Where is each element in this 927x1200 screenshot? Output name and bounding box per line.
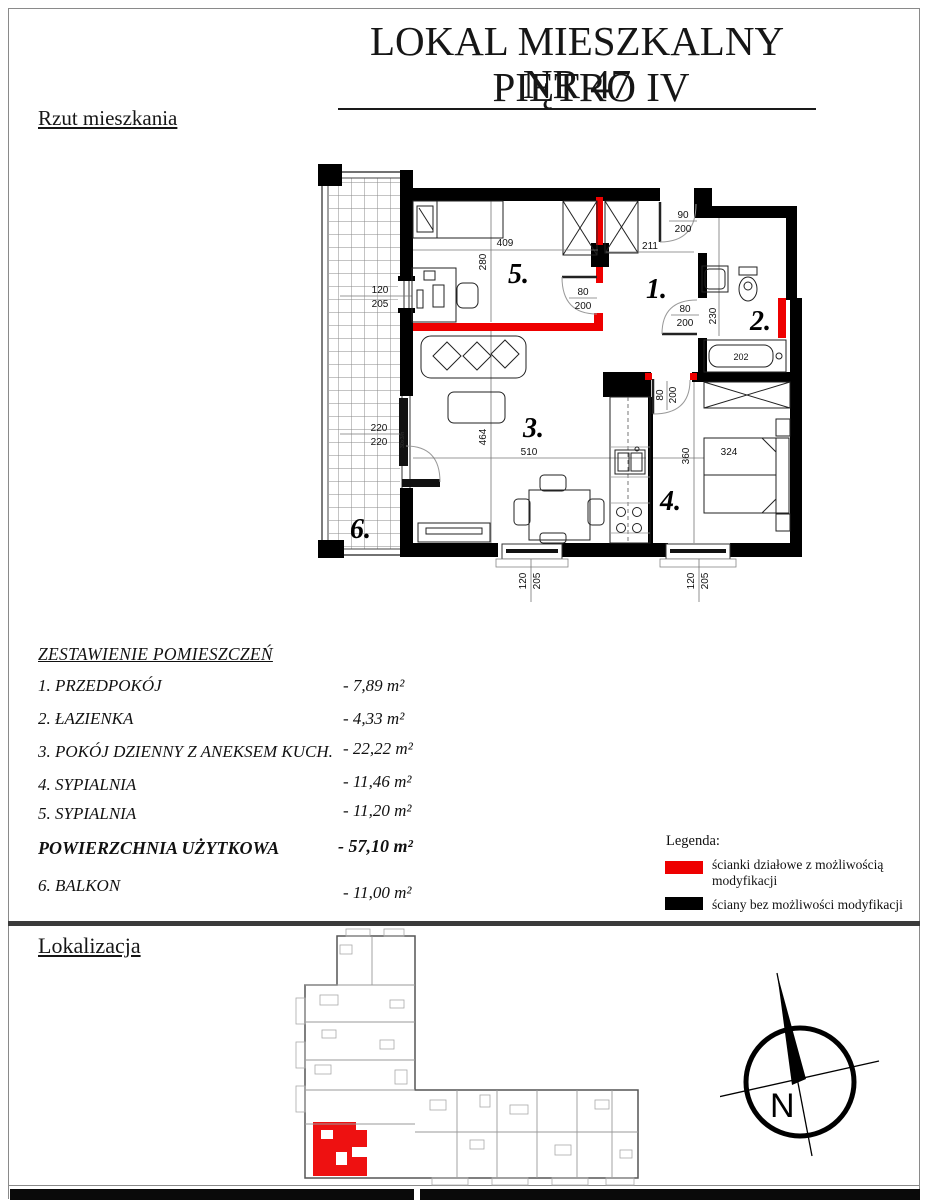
kitchen-annex bbox=[610, 397, 650, 543]
room-label-5: 5. bbox=[508, 259, 529, 290]
dim-entrance-200: 200 bbox=[675, 224, 692, 235]
plan-section-title: Rzut mieszkania bbox=[38, 106, 177, 131]
dim-win-left-120: 120 bbox=[372, 285, 389, 296]
dim-230: 230 bbox=[708, 307, 719, 324]
usable-area-label: POWIERZCHNIA UŻYTKOWA bbox=[38, 838, 279, 859]
dim-409: 409 bbox=[497, 238, 514, 249]
room-list-row-label: 2. ŁAZIENKA bbox=[38, 709, 133, 729]
footer-bar-right bbox=[420, 1189, 920, 1200]
dim-doorbath-80: 80 bbox=[679, 304, 691, 315]
legend-swatch-red-walls bbox=[665, 861, 703, 874]
room-list-row-label: 4. SYPIALNIA bbox=[38, 775, 136, 795]
dim-door4-200: 200 bbox=[668, 386, 679, 403]
building-unit-details bbox=[315, 945, 632, 1158]
room-list-row-value: - 7,89 m² bbox=[343, 676, 404, 696]
room-list-row-value: - 22,22 m² bbox=[343, 739, 413, 759]
dim-win2-205: 205 bbox=[700, 572, 711, 589]
compass-north-label: N bbox=[770, 1087, 795, 1125]
dim-doorbath-200: 200 bbox=[677, 318, 694, 329]
dim-win2-120: 120 bbox=[686, 572, 697, 589]
room-list-row-label: 3. POKÓJ DZIENNY Z ANEKSEM KUCH. bbox=[38, 742, 333, 762]
room-label-6: 6. bbox=[350, 514, 371, 545]
usable-area-value: - 57,10 m² bbox=[338, 836, 413, 857]
partition-walls-red bbox=[413, 197, 786, 380]
location-section-title: Lokalizacja bbox=[38, 933, 141, 959]
footer-bar-left bbox=[10, 1189, 414, 1200]
room-list-row-label: 5. SYPIALNIA bbox=[38, 804, 136, 824]
dim-324: 324 bbox=[721, 447, 738, 458]
balcony-terrace bbox=[318, 164, 400, 558]
room-list-row-label: 1. PRZEDPOKÓJ bbox=[38, 676, 162, 696]
dim-entrance-90: 90 bbox=[677, 210, 689, 221]
dim-510: 510 bbox=[521, 447, 538, 458]
room-list-row-value: - 11,20 m² bbox=[343, 801, 412, 821]
balcony-row-label: 6. BALKON bbox=[38, 876, 120, 896]
page-border-left bbox=[8, 8, 9, 1199]
dim-280: 280 bbox=[478, 253, 489, 270]
floorplan-document-page: LOKAL MIESZKALNY NR 47 PIĘTRO IV Rzut mi… bbox=[0, 0, 927, 1200]
page-subtitle: PIĘTRO IV bbox=[352, 66, 830, 109]
toilet-icon bbox=[739, 267, 757, 275]
stove-icon bbox=[617, 508, 642, 533]
page-border-top bbox=[8, 8, 920, 9]
dim-464: 464 bbox=[478, 428, 489, 445]
dim-door5-200: 200 bbox=[575, 301, 592, 312]
dim-win1-120: 120 bbox=[518, 572, 529, 589]
dim-balcdoor-220b: 220 bbox=[371, 437, 388, 448]
room-label-2: 2. bbox=[749, 306, 771, 337]
room-list-title: ZESTAWIENIE POMIESZCZEŃ bbox=[38, 644, 273, 665]
dim-202-bathtub: 202 bbox=[733, 352, 748, 362]
dim-win-left-205: 205 bbox=[372, 299, 389, 310]
dim-door5-80: 80 bbox=[577, 287, 589, 298]
apartment-floorplan: 1. 2. 3. 4. 5. 6. 409 280 211 230 202 46… bbox=[310, 150, 822, 610]
room-list-row-value: - 11,46 m² bbox=[343, 772, 412, 792]
dimension-labels: 409 280 211 230 202 464 510 360 324 90 2… bbox=[371, 210, 749, 589]
balcony-row-value: - 11,00 m² bbox=[343, 883, 412, 903]
room-label-3: 3. bbox=[522, 413, 544, 444]
page-border-right bbox=[919, 8, 920, 1199]
dim-win1-205: 205 bbox=[532, 572, 543, 589]
compass-circle bbox=[746, 1028, 854, 1136]
highlighted-unit bbox=[313, 1122, 367, 1176]
kitchen-sink-icon bbox=[615, 450, 645, 474]
room-label-1: 1. bbox=[646, 274, 667, 305]
dim-211: 211 bbox=[642, 241, 658, 252]
dim-door4-80: 80 bbox=[655, 389, 666, 401]
dim-balcdoor-220a: 220 bbox=[371, 423, 388, 434]
building-location-map bbox=[280, 925, 640, 1187]
legend-swatch-black-walls bbox=[665, 897, 703, 910]
legend-label-red-walls: ścianki działowe z możliwością modyfikac… bbox=[712, 857, 912, 890]
livingroom-furniture bbox=[418, 336, 604, 543]
room-label-4: 4. bbox=[659, 486, 681, 517]
dim-360: 360 bbox=[681, 447, 692, 464]
legend-label-black-walls: ściany bez możliwości modyfikacji bbox=[712, 897, 927, 913]
legend-title: Legenda: bbox=[666, 833, 720, 850]
room-list-row-value: - 4,33 m² bbox=[343, 709, 404, 729]
dim-step-note: 30x3/h bbox=[400, 432, 406, 449]
bedroom4-furniture bbox=[704, 419, 790, 531]
north-compass: N bbox=[720, 950, 880, 1165]
bedroom5-furniture bbox=[412, 201, 503, 322]
